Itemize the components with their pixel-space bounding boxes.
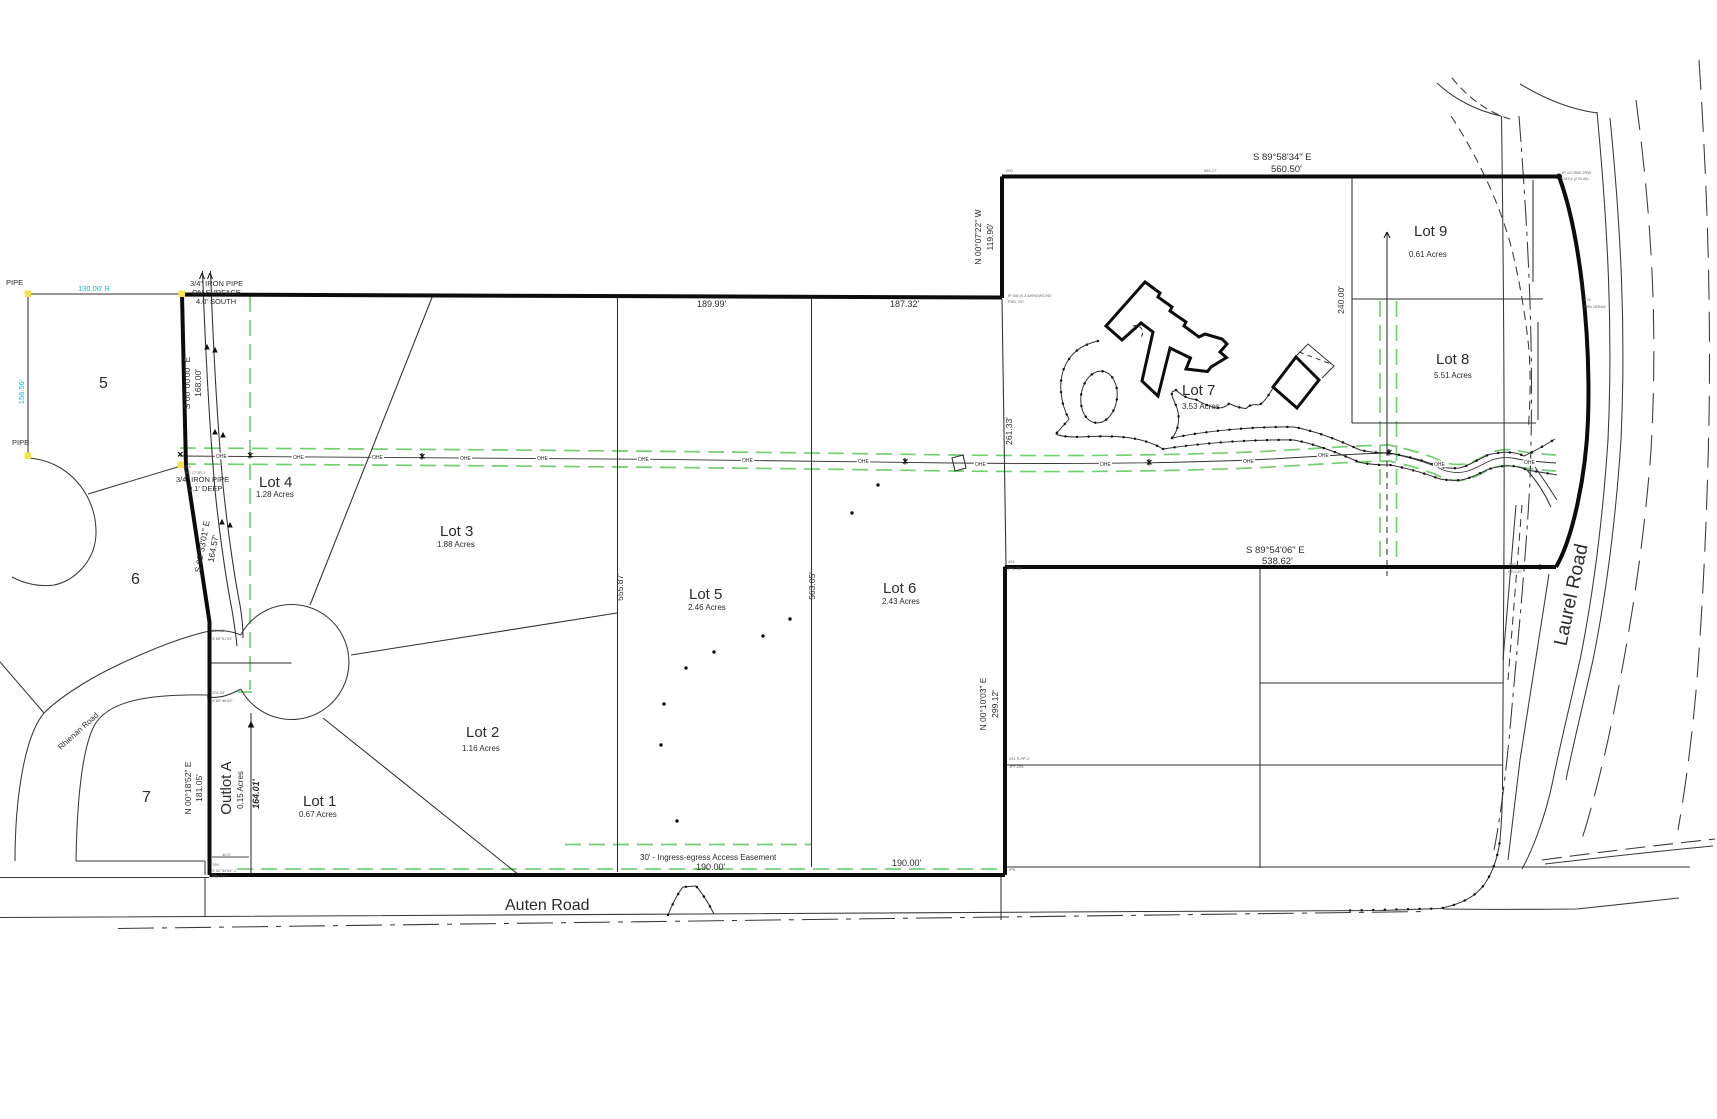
svg-text:7: 7 [142,789,151,806]
svg-text:OHE: OHE [1434,462,1446,468]
svg-text:187.32': 187.32' [890,299,920,309]
svg-text:S 89°46'09": S 89°46'09" [212,698,233,703]
svg-text:0.1' DEEP: 0.1' DEEP [188,484,222,493]
svg-text:S 89°58'34" E: S 89°58'34" E [1253,152,1312,163]
svg-text:689.27': 689.27' [1204,168,1217,173]
svg-text:RW 777: RW 777 [212,874,227,879]
svg-text:164.01': 164.01' [251,778,261,809]
svg-text:Lot 9: Lot 9 [1414,223,1447,240]
svg-text:OHE: OHE [975,462,987,468]
svg-text:6: 6 [131,571,140,588]
svg-text:OHE: OHE [742,458,754,464]
svg-text:JPT.235: JPT.235 [1009,764,1024,769]
svg-text:OHE: OHE [372,455,384,461]
svg-text:FND DRNW: FND DRNW [1584,304,1606,309]
svg-text:OHE: OHE [858,459,870,465]
svg-text:1.28 Acres: 1.28 Acres [256,490,294,499]
svg-text:Lot 3: Lot 3 [440,523,473,540]
svg-text:Lot 5: Lot 5 [689,586,722,603]
svg-text:451: 451 [1008,559,1015,564]
svg-text:299.12': 299.12' [990,690,1000,718]
svg-text:OHE: OHE [1318,453,1330,459]
svg-text:251 S.PP-2: 251 S.PP-2 [1009,756,1030,761]
svg-text:156.56': 156.56' [17,379,26,404]
svg-text:N 00°10'03" E: N 00°10'03" E [978,677,988,730]
svg-text:560.50': 560.50' [1271,164,1302,175]
svg-text:N 00°18'52" E: N 00°18'52" E [183,761,193,814]
svg-text:162.17'1P-2: 162.17'1P-2 [184,470,206,475]
svg-text:240.00': 240.00' [1336,286,1346,314]
svg-text:Lot 6: Lot 6 [883,580,916,597]
svg-text:OHE: OHE [1524,460,1536,466]
svg-text:N 00°07'22" W: N 00°07'22" W [973,209,983,264]
svg-text:538.62': 538.62' [1262,556,1293,567]
svg-text:40.0': 40.0' [222,852,231,857]
svg-text:261.33': 261.33' [1004,417,1014,445]
svg-text:2.46 Acres: 2.46 Acres [688,603,726,612]
svg-text:168.00': 168.00' [193,369,203,397]
svg-text:190.00': 190.00' [696,862,726,872]
svg-text:PIPE: PIPE [12,438,29,447]
svg-text:OHE: OHE [216,454,228,460]
svg-text:0.15 Acres: 0.15 Acres [236,771,245,809]
svg-text:200: 200 [1006,168,1013,173]
svg-text:S 89°51'09": S 89°51'09" [212,636,233,641]
svg-text:IPN.787: IPN.787 [1008,566,1023,571]
svg-text:IPS: IPS [1009,867,1016,872]
svg-text:FND.787: FND.787 [1008,299,1025,304]
svg-text:IP 5/8 (0.3 ARND)RCHD: IP 5/8 (0.3 ARND)RCHD [1008,293,1052,298]
svg-text:S 00°00'00" E: S 00°00'00" E [182,356,192,409]
svg-text:3/4" IRON PIPE: 3/4" IRON PIPE [190,279,243,288]
svg-text:2.43 Acres: 2.43 Acres [882,597,920,606]
svg-text:769: 769 [212,862,219,867]
svg-text:S 02°34'54"-2: S 02°34'54"-2 [212,868,237,873]
svg-text:Outlot A: Outlot A [218,761,235,814]
svg-text:181.05': 181.05' [194,774,204,802]
svg-text:OHE: OHE [1100,462,1112,468]
svg-text:1.88 Acres: 1.88 Acres [437,540,475,549]
svg-text:SEO.87: SEO.87 [1508,569,1523,574]
svg-text:5: 5 [99,375,108,392]
svg-text:5.51 Acres: 5.51 Acres [1434,371,1472,380]
svg-text:3/4" IRON PIPE: 3/4" IRON PIPE [176,475,229,484]
svg-text:ON SURFACE: ON SURFACE [192,288,241,297]
svg-text:PIPE: PIPE [6,278,23,287]
svg-text:Lot 1: Lot 1 [303,793,336,810]
svg-text:S 89°54'06" E: S 89°54'06" E [1246,545,1305,556]
svg-text:276: 276 [1584,297,1591,302]
svg-text:190.00': 190.00' [892,858,922,868]
svg-text:OHE: OHE [460,456,472,462]
svg-text:3.53 Acres: 3.53 Acres [1182,402,1220,411]
svg-text:119.90': 119.90' [985,223,995,250]
svg-text:1.16 Acres: 1.16 Acres [462,744,500,753]
svg-text:OHE: OHE [638,457,650,463]
svg-text:Lot 4: Lot 4 [259,474,292,491]
svg-text:OHE: OHE [537,456,549,462]
svg-text:584: 584 [184,464,191,469]
svg-text:204.03': 204.03' [212,690,225,695]
svg-text:Auten Road: Auten Road [505,897,590,914]
svg-text:264.02': 264.02' [212,628,225,633]
svg-text:TRE: TRE [1508,562,1516,567]
svg-text:Lot 8: Lot 8 [1436,351,1469,368]
svg-text:0.67 Acres: 0.67 Acres [299,810,337,819]
svg-text:DAT.# (276.40): DAT.# (276.40) [1562,176,1589,181]
svg-text:563.05': 563.05' [807,572,817,600]
svg-text:30' - Ingress-egress Access Ea: 30' - Ingress-egress Access Easement [640,853,777,862]
svg-text:Lot 7: Lot 7 [1182,382,1215,399]
svg-text:IP 1/2 RB0.2RW: IP 1/2 RB0.2RW [1562,170,1591,175]
svg-text:555.87': 555.87' [615,573,625,601]
svg-text:OHE: OHE [293,455,305,461]
svg-text:189.99': 189.99' [697,299,727,309]
svg-text:Lot 2: Lot 2 [466,724,499,741]
svg-text:130.00' R: 130.00' R [78,284,110,293]
svg-text:OHE: OHE [1243,459,1255,465]
svg-text:0.61 Acres: 0.61 Acres [1409,250,1447,259]
svg-text:4.0' SOUTH: 4.0' SOUTH [196,297,236,306]
